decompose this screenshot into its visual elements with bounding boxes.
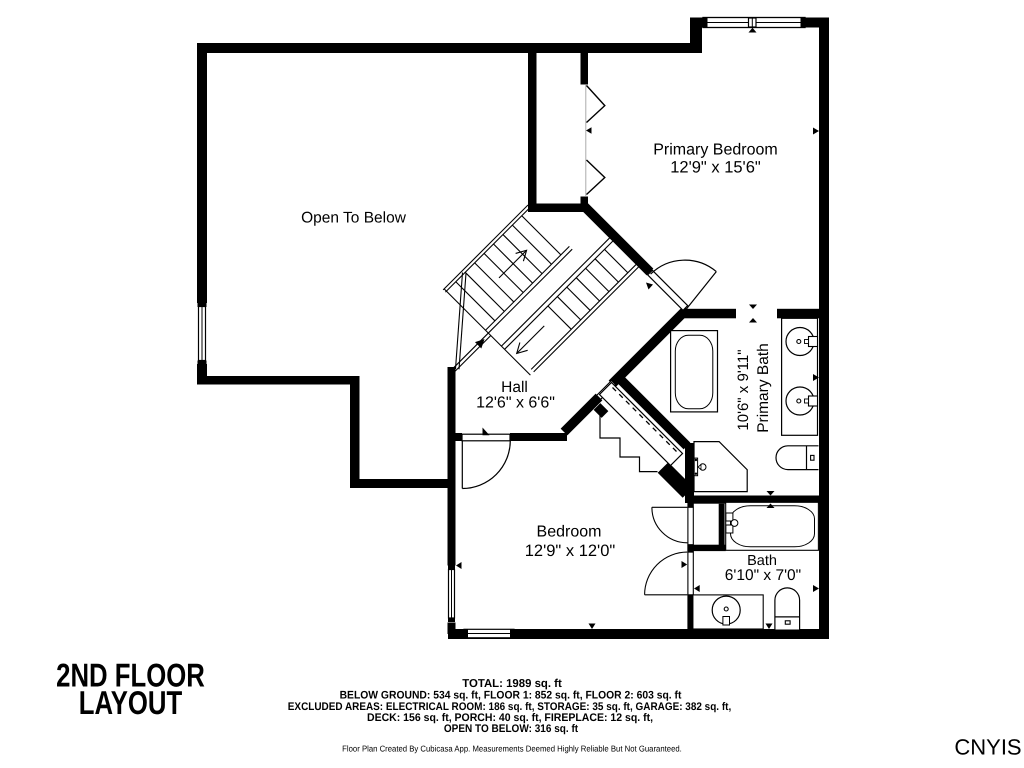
svg-text:Open To Below: Open To Below: [301, 210, 407, 227]
svg-text:Primary Bedroom: Primary Bedroom: [653, 142, 777, 159]
svg-text:12'9" x 12'0": 12'9" x 12'0": [525, 542, 616, 560]
svg-text:LAYOUT: LAYOUT: [79, 684, 182, 721]
svg-text:Floor Plan Created By Cubicasa: Floor Plan Created By Cubicasa App. Meas…: [342, 744, 682, 754]
svg-text:Hall: Hall: [501, 379, 528, 396]
svg-text:6'10" x 7'0": 6'10" x 7'0": [725, 567, 801, 584]
svg-text:OPEN TO BELOW: 316 sq. ft: OPEN TO BELOW: 316 sq. ft: [444, 723, 579, 735]
svg-text:BELOW GROUND: 534 sq. ft, FLOO: BELOW GROUND: 534 sq. ft, FLOOR 1: 852 s…: [340, 689, 682, 701]
svg-text:12'6" x 6'6": 12'6" x 6'6": [476, 395, 555, 412]
svg-text:Bedroom: Bedroom: [537, 524, 602, 541]
svg-text:Primary Bath: Primary Bath: [755, 343, 772, 433]
svg-text:12'9" x 15'6": 12'9" x 15'6": [670, 158, 761, 176]
svg-text:CNYIS: CNYIS: [954, 735, 1021, 760]
svg-text:TOTAL: 1989 sq. ft: TOTAL: 1989 sq. ft: [462, 678, 562, 690]
svg-text:10'6" x 9'11": 10'6" x 9'11": [735, 349, 752, 430]
